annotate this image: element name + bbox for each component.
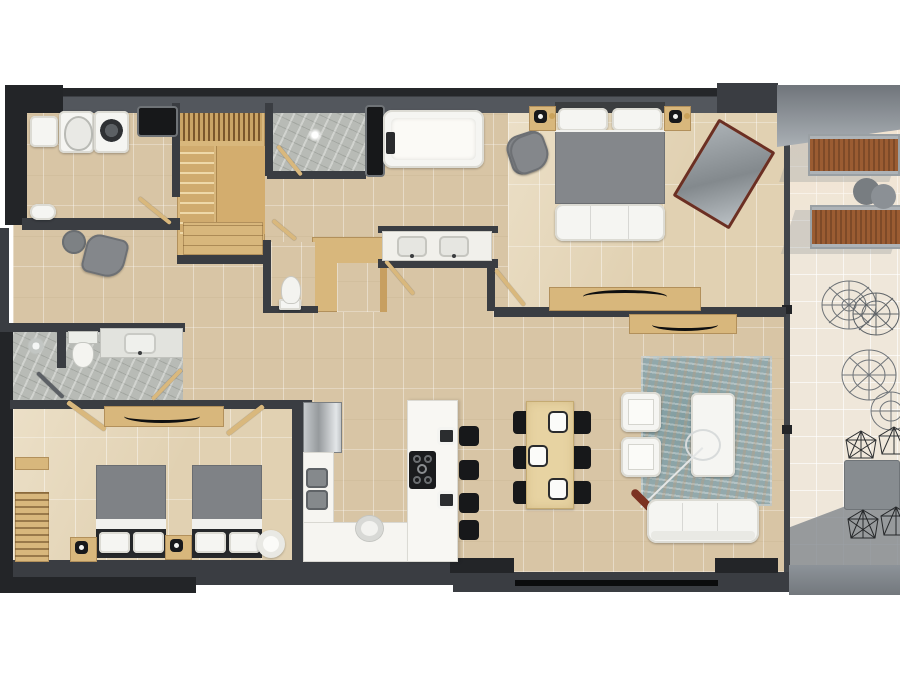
lamp-shade — [79, 545, 84, 550]
wc-toilet-bowl — [281, 276, 301, 304]
burner — [413, 476, 421, 484]
wall-left-upper — [5, 85, 27, 225]
bath-tray — [386, 132, 395, 154]
wall-balcony-bottom — [789, 565, 900, 595]
wire-dining-chair — [874, 424, 900, 460]
glass-wall — [784, 113, 790, 572]
wall-bottom-left-rim — [0, 577, 196, 593]
bar-stool — [459, 493, 479, 513]
bar-stool — [459, 520, 479, 540]
lamp-shade — [174, 543, 179, 548]
place-setting — [548, 478, 568, 500]
dining-chair — [571, 481, 591, 504]
stair-landing — [216, 146, 265, 234]
curved-tv — [583, 290, 667, 305]
sun-lounger — [808, 134, 900, 176]
bathtub-interior — [391, 118, 476, 160]
pillow — [133, 532, 164, 553]
wall-shower-bottom — [267, 171, 366, 179]
counter-niche — [137, 106, 178, 137]
dining-chair — [571, 411, 591, 434]
bench-seam — [628, 206, 629, 239]
wire-lounge-chair — [851, 291, 900, 337]
decor-gold — [549, 113, 555, 119]
place-setting — [548, 411, 568, 433]
arc-lamp-head — [685, 429, 721, 461]
wall-kitchen-left — [292, 403, 303, 577]
sofa-seam — [682, 503, 683, 531]
burner — [424, 476, 432, 484]
faucet — [410, 254, 414, 258]
bed-bench — [555, 204, 665, 241]
glass-mullion — [782, 425, 792, 434]
bed-duvet — [555, 130, 665, 204]
balcony-side-table — [871, 184, 896, 209]
refrigerator — [303, 402, 342, 453]
shower-head — [27, 337, 45, 355]
bed2b-sheet — [192, 519, 262, 529]
pillow — [195, 532, 226, 553]
island-chair — [437, 427, 456, 445]
wall-shelf-dish — [30, 204, 56, 220]
toilet-seat — [64, 116, 93, 151]
understair-cabinet — [183, 222, 263, 255]
wall-bottom-block-right — [715, 558, 778, 573]
pillow — [612, 108, 662, 131]
decor-gold — [684, 113, 690, 119]
window-strip — [515, 580, 718, 586]
curved-tv — [124, 408, 200, 423]
burner — [417, 464, 427, 474]
wall-wc-left — [263, 240, 271, 313]
bar-stool — [459, 460, 479, 480]
round-pouf — [257, 530, 285, 558]
sun-lounger — [810, 205, 900, 249]
place-setting — [528, 445, 548, 467]
faucet — [138, 351, 142, 355]
storage-niche — [365, 105, 385, 177]
armchair-cushion — [628, 444, 654, 470]
toilet2-bowl — [72, 342, 94, 368]
curved-tv — [652, 317, 718, 331]
lamp-shade — [673, 114, 678, 119]
wall-master-entry — [487, 261, 495, 311]
shelf — [15, 457, 49, 470]
wall-top-right-block — [717, 83, 778, 113]
dining-chair — [571, 446, 591, 469]
entry-side-table — [62, 230, 86, 254]
armchair-cushion — [628, 399, 654, 425]
burner — [413, 455, 421, 463]
faucet — [452, 254, 456, 258]
sofa-back — [651, 531, 755, 540]
wall-left-sliver — [0, 228, 9, 326]
kitchen-sink — [306, 468, 328, 488]
sofa-seam — [717, 503, 718, 531]
wall-stairs-bottom — [177, 255, 267, 264]
pillow — [558, 108, 608, 131]
floor-plan-canvas — [0, 0, 900, 675]
closet-slat — [380, 263, 387, 312]
wire-dining-chair — [876, 503, 900, 541]
pillow — [99, 532, 130, 553]
kitchen-sink — [306, 490, 328, 510]
washer-drum — [100, 119, 123, 142]
walkin-closet-floor — [337, 263, 385, 312]
pot — [355, 515, 384, 542]
laundry-basin — [30, 116, 58, 147]
bed2a-sheet — [96, 519, 166, 529]
wall-stairs-left — [265, 103, 273, 176]
wall-bottom-block-left — [450, 558, 514, 573]
wall-bathroom2-stub — [57, 329, 66, 368]
stair-treads — [180, 146, 214, 234]
bed2a-duvet — [96, 465, 166, 521]
lamp-shade — [538, 114, 543, 119]
bench-seam — [590, 206, 591, 239]
slatted-wardrobe — [15, 492, 49, 562]
pillow — [229, 532, 260, 553]
bed2b-duvet — [192, 465, 262, 521]
bar-stool — [459, 426, 479, 446]
burner — [424, 455, 432, 463]
shower-drain — [308, 128, 322, 142]
wall-left-lower — [0, 332, 13, 592]
island-chair — [437, 491, 456, 509]
